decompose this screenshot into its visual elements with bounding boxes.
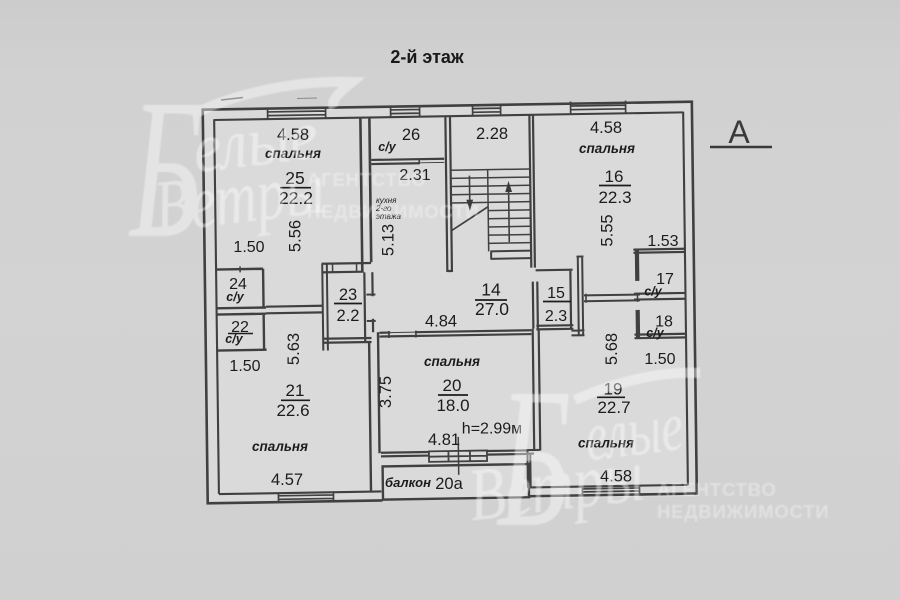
svg-text:А: А [728, 114, 750, 150]
svg-text:16: 16 [605, 167, 624, 186]
svg-text:14: 14 [481, 280, 501, 300]
svg-text:20: 20 [443, 376, 462, 395]
svg-text:5.13: 5.13 [380, 224, 398, 256]
svg-text:с/у: с/у [644, 285, 662, 299]
svg-text:27.0: 27.0 [475, 299, 509, 319]
svg-text:АГЕНТСТВО: АГЕНТСТВО [657, 479, 777, 500]
svg-text:спальня: спальня [424, 354, 480, 369]
svg-text:НЕДВИЖИМОСТИ: НЕДВИЖИМОСТИ [657, 501, 829, 522]
svg-text:с/у: с/у [226, 290, 244, 304]
svg-text:с/у: с/у [378, 140, 396, 154]
svg-text:1.50: 1.50 [233, 239, 264, 256]
svg-text:3.75: 3.75 [377, 376, 395, 408]
svg-text:2.28: 2.28 [476, 125, 508, 143]
svg-text:спальня: спальня [579, 141, 635, 156]
svg-text:23: 23 [339, 286, 357, 304]
svg-text:1.53: 1.53 [647, 233, 678, 250]
svg-text:балкон: балкон [385, 475, 431, 490]
svg-text:5.68: 5.68 [603, 333, 621, 365]
svg-text:4.81: 4.81 [428, 431, 460, 449]
svg-text:1.50: 1.50 [229, 358, 260, 375]
svg-text:5.55: 5.55 [599, 214, 617, 246]
svg-text:4.57: 4.57 [271, 471, 303, 489]
svg-text:1.50: 1.50 [644, 351, 675, 368]
svg-text:20а: 20а [435, 475, 463, 493]
svg-text:2.2: 2.2 [337, 307, 360, 325]
svg-text:4.58: 4.58 [590, 119, 622, 137]
svg-text:22.6: 22.6 [276, 401, 309, 420]
svg-text:5.63: 5.63 [285, 333, 303, 365]
svg-text:22.3: 22.3 [598, 188, 631, 207]
svg-text:с/у: с/у [646, 326, 664, 340]
svg-text:АГЕНТСТВО: АГЕНТСТВО [307, 169, 427, 190]
svg-text:26: 26 [402, 126, 420, 144]
svg-text:2.3: 2.3 [545, 308, 567, 325]
svg-text:2-й этаж: 2-й этаж [390, 47, 464, 67]
svg-text:15: 15 [547, 285, 565, 302]
svg-text:18.0: 18.0 [436, 396, 469, 415]
svg-text:4.84: 4.84 [425, 313, 457, 331]
svg-text:НЕДВИЖИМОСТИ: НЕДВИЖИМОСТИ [307, 201, 479, 222]
svg-text:21: 21 [286, 381, 305, 400]
svg-text:спальня: спальня [252, 439, 308, 454]
